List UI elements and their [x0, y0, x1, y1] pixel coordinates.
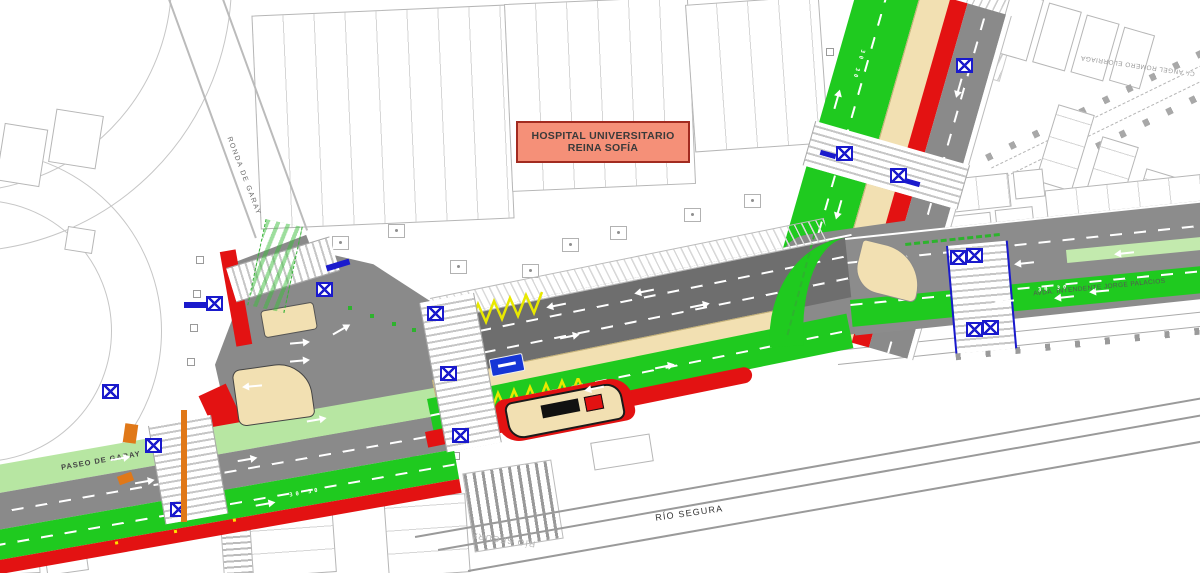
bus-bay — [584, 394, 605, 412]
building-outline — [504, 0, 696, 192]
traffic-signal — [956, 58, 973, 73]
building-outline — [64, 226, 95, 254]
tree-marker — [190, 324, 198, 332]
building-outline — [48, 109, 104, 170]
stud-marker — [174, 530, 177, 533]
traffic-signal — [950, 250, 967, 265]
parcel-marker — [332, 236, 349, 250]
traffic-signal — [966, 248, 983, 263]
traffic-signal — [452, 428, 469, 443]
works-marker-orange — [181, 410, 187, 522]
traffic-signal — [836, 146, 853, 161]
building-outline — [251, 5, 514, 230]
tree-marker — [826, 48, 834, 56]
building-outline — [1013, 169, 1046, 200]
building-outline — [685, 0, 829, 152]
river-line — [468, 438, 1200, 571]
traffic-signal — [206, 296, 223, 311]
tree-marker — [193, 290, 201, 298]
sign-text-bar — [498, 361, 516, 367]
stud-marker — [115, 541, 118, 544]
parcel-marker — [684, 208, 701, 222]
parcel-marker — [610, 226, 627, 240]
building-outline — [590, 433, 654, 470]
bike-dot — [392, 322, 396, 326]
bike-dot — [348, 306, 352, 310]
parcel-marker — [450, 260, 467, 274]
bike-dot — [370, 314, 374, 318]
plan-canvas: PASEO DE GARAY 30 30 30 30 — [0, 0, 1200, 573]
traffic-signal — [982, 320, 999, 335]
tree-marker — [196, 256, 204, 264]
traffic-signal — [102, 384, 119, 399]
traffic-signal — [427, 306, 444, 321]
stud-marker — [233, 518, 236, 521]
bus-shelter — [541, 398, 581, 418]
parcel-marker — [744, 194, 761, 208]
works-marker-orange — [123, 423, 139, 444]
traffic-signal — [440, 366, 457, 381]
bike-dot — [412, 328, 416, 332]
hospital-label-line2: REINA SOFÍA — [568, 142, 639, 154]
traffic-signal — [316, 282, 333, 297]
traffic-signal — [966, 322, 983, 337]
parcel-marker — [388, 224, 405, 238]
traffic-signal — [145, 438, 162, 453]
hospital-label-line1: HOSPITAL UNIVERSITARIO — [531, 130, 674, 142]
parcel-marker — [562, 238, 579, 252]
tree-marker — [187, 358, 195, 366]
hospital-label-box: HOSPITAL UNIVERSITARIO REINA SOFÍA — [516, 121, 690, 163]
